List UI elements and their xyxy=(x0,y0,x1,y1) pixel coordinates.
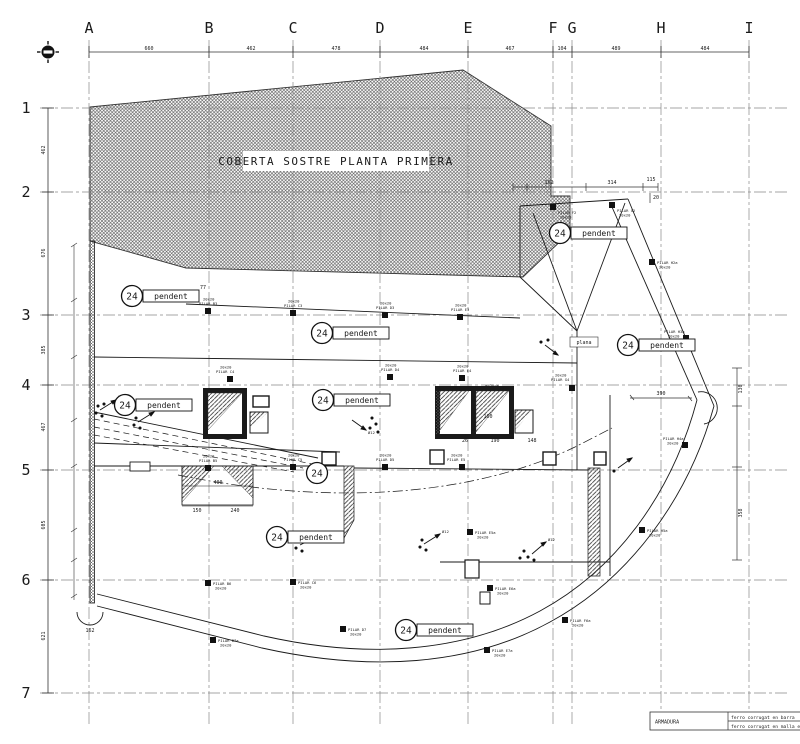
col-label-e: E xyxy=(463,19,472,37)
pilar-size: 20x20 xyxy=(203,454,215,459)
legend-title: ARMADURA xyxy=(655,720,679,726)
pilar-marker: PILAR H4a20x20 xyxy=(663,436,688,448)
dim-ur-4: 20 xyxy=(653,195,659,201)
pilar-size: 20x20 xyxy=(457,364,469,369)
pilar-size: 20x20 xyxy=(477,535,489,540)
dim-top-gh: 489 xyxy=(611,46,620,52)
pilar-label: PILAR C5 xyxy=(284,457,302,462)
rebar-arrow xyxy=(352,417,379,433)
pilar-marker: PILAR D720x20 xyxy=(340,626,366,637)
pilar-marker: PILAR G420x20 xyxy=(551,373,575,392)
pendent-number: 24 xyxy=(311,469,323,480)
pilar-size: 20x20 xyxy=(619,213,631,218)
pendent-number: 24 xyxy=(317,396,329,407)
pendent-text: pendent xyxy=(299,533,333,542)
pilar-marker: PILAR E520x20 xyxy=(447,453,465,471)
pilar-size: 20x20 xyxy=(668,334,680,339)
plan-title: COBERTA SOSTRE PLANTA PRIMERA xyxy=(218,151,454,171)
pilar-size: 20x20 xyxy=(380,453,392,458)
col-label-c: C xyxy=(288,19,297,37)
col-label-f: F xyxy=(548,19,557,37)
pilar-label: PILAR E5 xyxy=(447,457,465,462)
pilar-size: 20x20 xyxy=(288,453,300,458)
beam-left xyxy=(182,466,253,506)
pendent-number: 24 xyxy=(119,401,131,412)
stair-shaft-right xyxy=(435,386,514,439)
pendent-label: 24 pendent xyxy=(313,390,391,411)
pendent-label: 24 pendent xyxy=(550,223,628,244)
pilar-marker: PILAR E320x20 xyxy=(451,303,469,321)
pilar-label: PILAR D3 xyxy=(376,305,394,310)
pilar-size: 20x20 xyxy=(667,441,679,446)
pilar-size: 20x20 xyxy=(288,299,300,304)
pilar-marker: PILAR E5a20x20 xyxy=(467,529,496,540)
pendent-text: pendent xyxy=(650,341,684,350)
pilar-size: 20x20 xyxy=(572,623,584,628)
pilar-size: 20x20 xyxy=(385,363,397,368)
pilar-label: PILAR G4 xyxy=(551,377,570,382)
plana-text: plana xyxy=(576,340,591,346)
pilar-marker: PILAR F6a20x20 xyxy=(562,617,591,628)
pilar-marker: PILAR C620x20 xyxy=(290,579,317,590)
pilar-size: 20x20 xyxy=(494,653,506,658)
pilar-size: 20x20 xyxy=(350,632,362,637)
pendent-number: 24 xyxy=(126,292,138,303)
pilar-label: PILAR E3 xyxy=(451,307,469,312)
pilar-size: 20x20 xyxy=(555,373,567,378)
pilar-size: 20x20 xyxy=(659,265,671,270)
beam-strip-center xyxy=(344,466,354,538)
pendent-text: pendent xyxy=(344,329,378,338)
pilar-size: 20x20 xyxy=(451,453,463,458)
roof-hatch-area xyxy=(90,70,570,277)
rebar-arrow xyxy=(419,534,440,551)
pilar-marker: PILAR H2a20x20 xyxy=(649,259,678,270)
pendent-number: 24 xyxy=(271,533,283,544)
pendent-text: pendent xyxy=(345,396,379,405)
row-label-4: 4 xyxy=(21,376,30,394)
dim-beam-400: 400 xyxy=(213,480,222,486)
rebar-arrow xyxy=(519,542,546,561)
dim-opening-160: 160 xyxy=(483,414,492,420)
row-label-3: 3 xyxy=(21,306,30,324)
pilar-size: 20x20 xyxy=(649,533,661,538)
pendent-label: 24 pendent xyxy=(396,620,474,641)
pendent-text: pendent xyxy=(428,626,462,635)
dim-right-2: 358 xyxy=(738,508,744,517)
legend-box: ARMADURA ferro corrugat en barra ferro c… xyxy=(650,712,800,730)
dim-top-de: 484 xyxy=(419,46,428,52)
pendent-label-circle-only: 24 xyxy=(307,463,328,484)
dim-top-bc: 462 xyxy=(246,46,255,52)
rebar-arrow xyxy=(540,339,558,355)
pilar-size: 20x20 xyxy=(220,643,232,648)
pendent-label: 24 pendent xyxy=(312,323,390,344)
pilar-marker: PILAR B7a20x20 xyxy=(210,637,239,648)
pilar-label: PILAR D5 xyxy=(376,457,394,462)
pilar-label: PILAR C4 xyxy=(216,369,235,374)
plana-label: plana xyxy=(570,337,598,347)
pendent-text: pendent xyxy=(582,229,616,238)
legend-row-2: ferro corrugat en malla electrosoldada xyxy=(731,724,800,730)
pilar-size: 20x20 xyxy=(497,591,509,596)
right-vertical-dimension xyxy=(732,368,742,560)
dim-left-12: 462 xyxy=(41,145,47,154)
pendent-number: 24 xyxy=(316,329,328,340)
pilar-label: PILAR D4 xyxy=(381,367,400,372)
pilar-size: 20x20 xyxy=(203,297,215,302)
stair-shaft-left xyxy=(203,388,247,439)
dim-left-56: 605 xyxy=(41,520,47,529)
row-label-2: 2 xyxy=(21,183,30,201)
left-dimension-line xyxy=(42,108,54,693)
legend-row-1: ferro corrugat en barra xyxy=(731,715,795,721)
col-label-b: B xyxy=(204,19,213,37)
dim-left-23: 676 xyxy=(41,248,47,257)
pilar-size: 20x20 xyxy=(300,585,312,590)
col-label-h: H xyxy=(656,19,665,37)
pendent-label: 24 pendent xyxy=(122,286,200,307)
grid-row-labels: 1 2 3 4 5 6 7 xyxy=(21,99,30,702)
dim-shaft-148: 148 xyxy=(527,438,536,444)
pilar-label: PILAR B3 xyxy=(199,301,217,306)
pilar-marker: PILAR C320x20 xyxy=(284,299,302,317)
col-label-d: D xyxy=(375,19,384,37)
rebar-label: Ø12 xyxy=(368,430,375,435)
pilar-marker: PILAR C420x20 xyxy=(216,365,235,383)
pilar-size: 20x20 xyxy=(455,303,467,308)
survey-marker-icon xyxy=(37,41,59,63)
dim-ur-1: 162 xyxy=(544,180,553,186)
col-label-a: A xyxy=(84,19,93,37)
left-dimension-values: 462 676 385 467 605 621 xyxy=(41,145,47,640)
pilar-marker: PILAR E420x20 xyxy=(453,364,472,382)
dim-misc-77: 77 xyxy=(200,285,206,291)
dim-top-hi: 484 xyxy=(700,46,709,52)
row-label-6: 6 xyxy=(21,571,30,589)
pilar-size: 20x20 xyxy=(380,301,392,306)
dim-shaft-26: 26 xyxy=(462,438,468,444)
row-label-5: 5 xyxy=(21,461,30,479)
dim-ur-2: 314 xyxy=(607,180,616,186)
pilar-marker: PILAR D520x20 xyxy=(376,453,394,471)
pilar-size: 20x20 xyxy=(215,586,227,591)
grid-column-labels: A B C D E F G H I xyxy=(84,19,753,37)
pendent-text: pendent xyxy=(147,401,181,410)
dim-top-cd: 478 xyxy=(331,46,340,52)
dim-beam-240: 240 xyxy=(230,508,239,514)
pilar-marker: PILAR D320x20 xyxy=(376,301,394,319)
dim-point: 390 xyxy=(656,391,665,397)
pilar-marker: PILAR B320x20 xyxy=(199,297,217,315)
pilar-marker: PILAR H5a20x20 xyxy=(639,527,668,538)
pendent-number: 24 xyxy=(400,626,412,637)
pendent-number: 24 xyxy=(622,341,634,352)
plan-title-text: COBERTA SOSTRE PLANTA PRIMERA xyxy=(218,155,454,168)
dim-top-ef: 467 xyxy=(505,46,514,52)
pilar-marker: PILAR E7a20x20 xyxy=(484,647,513,658)
pilar-label: PILAR E4 xyxy=(453,368,472,373)
dim-top-ab: 660 xyxy=(144,46,153,52)
pilar-label: PILAR C3 xyxy=(284,303,302,308)
pilar-size: 20x20 xyxy=(220,365,232,370)
pendent-label: 24 pendent xyxy=(267,527,345,548)
top-dimension-values: 660 462 478 484 467 104 489 484 xyxy=(144,46,709,52)
floor-plan-page: 660 462 478 484 467 104 489 484 462 676 … xyxy=(0,0,800,744)
dim-top-fg: 104 xyxy=(557,46,566,52)
dim-left-45: 467 xyxy=(41,422,47,431)
small-detail-boxes xyxy=(130,396,606,604)
pilar-marker: PILAR E6a20x20 xyxy=(487,585,516,596)
col-label-g: G xyxy=(567,19,576,37)
dim-corner-162: 162 xyxy=(85,628,94,634)
row-label-1: 1 xyxy=(21,99,30,117)
dim-left-67: 621 xyxy=(41,631,47,640)
col-label-i: I xyxy=(744,19,753,37)
wall-dimension-line xyxy=(71,243,77,600)
dim-thickness: e=20cm xyxy=(485,383,499,388)
rebar-label: Ø12 xyxy=(548,537,555,542)
dim-ur-3: 115 xyxy=(646,177,655,183)
pilar-marker: PILAR C520x20 xyxy=(284,453,302,471)
pendent-text: pendent xyxy=(154,292,188,301)
dim-beam-150: 150 xyxy=(192,508,201,514)
dim-right-1: 130 xyxy=(738,384,744,393)
row-label-7: 7 xyxy=(21,684,30,702)
pendent-number: 24 xyxy=(554,229,566,240)
floor-plan-drawing: 660 462 478 484 467 104 489 484 462 676 … xyxy=(0,0,800,744)
dim-left-34: 385 xyxy=(41,345,47,354)
pilar-marker: PILAR D420x20 xyxy=(381,363,400,381)
pilar-label: PILAR B5 xyxy=(199,458,217,463)
dim-shaft-190: 190 xyxy=(490,438,499,444)
pilar-size: 20x20 xyxy=(560,215,572,220)
beam-strip-right xyxy=(588,468,600,576)
rebar-label: Ø12 xyxy=(442,529,449,534)
